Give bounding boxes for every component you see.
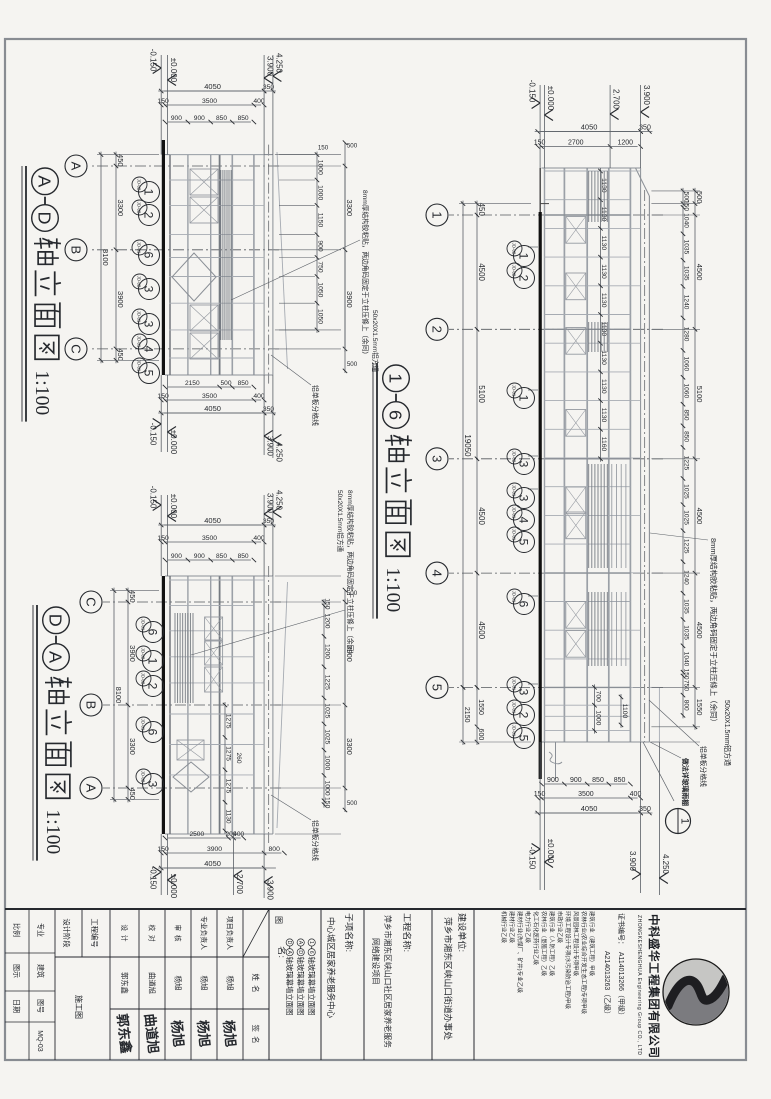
svg-text:1550: 1550 (695, 699, 704, 716)
svg-text:150: 150 (318, 145, 329, 152)
svg-text:450: 450 (128, 590, 137, 603)
svg-text:中心城区居家养老服务中心: 中心城区居家养老服务中心 (326, 917, 336, 1019)
svg-text:1: 1 (517, 253, 531, 260)
svg-text:D: D (35, 212, 55, 225)
svg-text:850: 850 (592, 777, 604, 784)
svg-text:-0.150: -0.150 (528, 847, 537, 870)
svg-text:3: 3 (517, 461, 531, 468)
svg-text:1240: 1240 (683, 570, 690, 585)
svg-text:1:100: 1:100 (31, 370, 53, 415)
svg-text:图: 图 (274, 916, 283, 924)
svg-text:450: 450 (477, 203, 486, 217)
svg-text:1: 1 (308, 941, 314, 944)
svg-text:3500: 3500 (202, 393, 217, 400)
svg-text:A: A (286, 950, 292, 954)
svg-text:3: 3 (146, 781, 160, 788)
svg-text:3900: 3900 (207, 846, 222, 853)
svg-text:800: 800 (683, 700, 690, 711)
svg-text:JD-01: JD-01 (137, 311, 142, 323)
svg-text:5: 5 (142, 370, 156, 377)
svg-text:3.900: 3.900 (628, 851, 637, 872)
svg-text:A: A (68, 162, 83, 171)
svg-text:JD-01: JD-01 (512, 702, 517, 714)
svg-text:网络建设项目: 网络建设项目 (371, 938, 381, 985)
svg-text:1: 1 (386, 373, 406, 383)
svg-text:4: 4 (142, 346, 156, 353)
svg-text:JD-02: JD-02 (141, 648, 146, 660)
svg-text:450: 450 (116, 348, 125, 361)
svg-text:1160: 1160 (600, 437, 607, 452)
svg-text:±0.000: ±0.000 (169, 494, 178, 519)
svg-text:1:100: 1:100 (382, 567, 404, 612)
svg-text:A: A (297, 941, 303, 945)
svg-text:JD-02: JD-02 (141, 771, 146, 783)
svg-text:JD-02: JD-02 (141, 673, 146, 685)
svg-text:1200: 1200 (324, 644, 331, 659)
svg-text:JD-02: JD-02 (137, 276, 142, 288)
svg-text:850: 850 (683, 409, 690, 420)
svg-text:900: 900 (317, 240, 324, 252)
svg-text:450: 450 (128, 787, 137, 800)
svg-text:3: 3 (429, 455, 444, 462)
svg-text:1025: 1025 (324, 703, 331, 718)
svg-text:1130: 1130 (600, 379, 607, 394)
svg-text:400: 400 (630, 791, 642, 798)
svg-text:1550: 1550 (477, 699, 484, 715)
svg-text:3: 3 (517, 689, 531, 696)
svg-text:6: 6 (146, 729, 160, 736)
svg-text:3300: 3300 (345, 200, 354, 217)
svg-text:4.250: 4.250 (274, 442, 283, 463)
svg-text:1: 1 (679, 818, 691, 824)
svg-text:JD-01: JD-01 (137, 336, 142, 348)
svg-text:JD-01: JD-01 (512, 507, 517, 519)
svg-text:JD-01: JD-01 (141, 719, 146, 731)
svg-text:JD-01: JD-01 (512, 679, 517, 691)
svg-text:JD-01: JD-01 (512, 529, 517, 541)
svg-text:2: 2 (517, 275, 531, 282)
svg-text:1225: 1225 (683, 456, 690, 471)
svg-text:D: D (46, 614, 66, 627)
svg-text:2700: 2700 (568, 140, 584, 147)
svg-text:B: B (83, 701, 98, 710)
svg-text:签 名: 签 名 (251, 1025, 261, 1044)
svg-text:500: 500 (220, 380, 231, 387)
svg-text:1240: 1240 (683, 295, 690, 310)
svg-text:850: 850 (216, 553, 227, 560)
svg-text:JD-02: JD-02 (512, 243, 517, 255)
svg-text:4050: 4050 (204, 82, 221, 91)
svg-text:1225: 1225 (324, 675, 331, 690)
svg-text:450: 450 (116, 154, 125, 167)
svg-text:900: 900 (570, 777, 582, 784)
svg-text:1275: 1275 (225, 746, 232, 761)
svg-text:850: 850 (238, 553, 249, 560)
svg-text:500: 500 (347, 361, 358, 368)
svg-text:2: 2 (517, 712, 531, 719)
svg-text:杨旭: 杨旭 (169, 1019, 188, 1048)
svg-text:C: C (68, 344, 83, 353)
svg-text:1025: 1025 (683, 484, 690, 499)
svg-text:4500: 4500 (477, 621, 486, 639)
svg-text:1200: 1200 (618, 140, 634, 147)
svg-text:4: 4 (517, 517, 531, 524)
svg-text:1000: 1000 (317, 160, 324, 175)
svg-text:500: 500 (695, 191, 704, 204)
svg-text:150: 150 (324, 598, 331, 610)
svg-text:4500: 4500 (695, 264, 704, 281)
svg-text:1040: 1040 (683, 213, 690, 228)
svg-text:姓 名: 姓 名 (251, 974, 261, 993)
svg-text:1100: 1100 (621, 704, 628, 719)
svg-text:6: 6 (142, 252, 156, 259)
svg-text:8100: 8100 (101, 249, 110, 266)
svg-text:萍乡市湘东区峡山口社区居家养老服务: 萍乡市湘东区峡山口社区居家养老服务 (383, 915, 393, 1048)
svg-text:ZHONGKESHENGHUA Engineering Gr: ZHONGKESHENGHUA Engineering Group CO., L… (636, 915, 642, 1055)
svg-text:150: 150 (534, 140, 546, 147)
svg-text:6: 6 (386, 410, 406, 420)
svg-text:JD-01: JD-01 (512, 385, 517, 397)
svg-text:±0.000: ±0.000 (546, 839, 555, 864)
svg-text:900: 900 (194, 553, 205, 560)
svg-text:A: A (46, 651, 66, 663)
svg-text:1060: 1060 (683, 356, 690, 371)
svg-text:5: 5 (517, 539, 531, 546)
svg-text:JD-01: JD-01 (512, 591, 517, 603)
svg-text:4050: 4050 (581, 804, 598, 813)
svg-text:4500: 4500 (477, 263, 486, 281)
svg-text:杨旭: 杨旭 (199, 976, 209, 991)
svg-text:4.250: 4.250 (274, 490, 283, 511)
svg-text:杨旭: 杨旭 (195, 1019, 214, 1048)
svg-text:5: 5 (429, 684, 444, 691)
svg-text:-0.150: -0.150 (149, 486, 158, 509)
svg-text:1: 1 (429, 211, 444, 218)
svg-text:-0.150: -0.150 (149, 49, 158, 72)
svg-text:900: 900 (547, 777, 559, 784)
svg-text:施工图: 施工图 (74, 995, 84, 1019)
svg-text:750: 750 (683, 680, 690, 691)
svg-text:1150: 1150 (317, 213, 324, 228)
svg-text:5100: 5100 (695, 386, 704, 403)
svg-text:400: 400 (253, 393, 265, 400)
svg-text:400: 400 (253, 535, 265, 542)
svg-text:C: C (83, 597, 98, 606)
svg-text:图号: 图号 (36, 999, 45, 1013)
svg-text:1050: 1050 (317, 309, 324, 324)
svg-text:4500: 4500 (477, 507, 486, 525)
svg-text:轴玻璃幕墙立面图: 轴玻璃幕墙立面图 (296, 957, 305, 1016)
svg-text:中科盛华工程集团有限公司: 中科盛华工程集团有限公司 (647, 914, 661, 1058)
svg-text:150: 150 (683, 669, 690, 680)
svg-text:1000: 1000 (317, 185, 324, 200)
svg-text:400: 400 (233, 831, 244, 838)
svg-text:±0.000: ±0.000 (546, 86, 555, 111)
svg-text:4500: 4500 (695, 508, 704, 525)
svg-text:600: 600 (477, 729, 484, 741)
svg-text:850: 850 (683, 431, 690, 442)
svg-text:2: 2 (146, 683, 160, 690)
svg-text:500: 500 (347, 800, 358, 807)
svg-text:8mm厚结构胶粘贴，两边角码固定于立柱压條上（余同）: 8mm厚结构胶粘贴，两边角码固定于立柱压條上（余同） (709, 538, 719, 726)
svg-text:3500: 3500 (202, 535, 217, 542)
svg-text:4.250: 4.250 (661, 854, 670, 875)
svg-text:4500: 4500 (695, 622, 704, 639)
svg-text:3300: 3300 (345, 738, 354, 755)
svg-text:8100: 8100 (114, 687, 123, 704)
svg-text:1035: 1035 (683, 625, 690, 640)
svg-text:4: 4 (429, 569, 444, 576)
svg-text:设计阶段: 设计阶段 (62, 919, 71, 948)
svg-text:850: 850 (614, 777, 626, 784)
svg-text:3900: 3900 (116, 291, 125, 308)
svg-text:500: 500 (683, 192, 690, 203)
svg-text:900: 900 (171, 115, 182, 122)
svg-text:4050: 4050 (204, 859, 221, 868)
svg-text:3900: 3900 (345, 291, 354, 308)
svg-text:6: 6 (308, 951, 314, 954)
svg-text:5100: 5100 (477, 385, 486, 403)
svg-text:3.900: 3.900 (642, 85, 651, 106)
svg-text:4050: 4050 (581, 123, 598, 132)
svg-text:1130: 1130 (600, 408, 607, 423)
svg-text:900: 900 (171, 553, 182, 560)
svg-text:1225: 1225 (683, 539, 690, 554)
svg-text:1: 1 (142, 189, 156, 196)
svg-text:850: 850 (238, 115, 249, 122)
svg-text:2150: 2150 (463, 707, 470, 723)
svg-text:1130: 1130 (600, 264, 607, 279)
svg-text:子项名称:: 子项名称: (344, 913, 354, 952)
svg-text:建筑: 建筑 (36, 964, 45, 978)
svg-text:3: 3 (142, 321, 156, 328)
svg-text:A: A (83, 784, 98, 793)
svg-text:1040: 1040 (683, 652, 690, 667)
svg-text:1275: 1275 (225, 714, 232, 729)
svg-text:1025: 1025 (324, 729, 331, 744)
svg-text:JD-01: JD-01 (141, 619, 146, 631)
svg-text:1060: 1060 (683, 383, 690, 398)
svg-text:150: 150 (324, 797, 331, 809)
svg-text:-0.150: -0.150 (528, 80, 537, 103)
svg-text:JD-02: JD-02 (137, 202, 142, 214)
svg-text:750: 750 (317, 261, 324, 273)
svg-text:1130: 1130 (600, 235, 607, 250)
svg-text:800: 800 (269, 846, 281, 853)
svg-text:19050: 19050 (463, 434, 472, 457)
svg-text:1130: 1130 (600, 293, 607, 308)
svg-text:2500: 2500 (189, 831, 204, 838)
svg-text:5: 5 (517, 735, 531, 742)
svg-text:3300: 3300 (128, 738, 137, 755)
svg-text:1000: 1000 (594, 710, 601, 725)
svg-text:工程名称:: 工程名称: (402, 913, 412, 952)
svg-text:-0.150: -0.150 (149, 867, 158, 890)
svg-text:3.900: 3.900 (266, 880, 275, 901)
svg-text:±0.000: ±0.000 (169, 430, 178, 455)
svg-text:1:100: 1:100 (42, 809, 64, 854)
svg-text:1000: 1000 (324, 755, 331, 770)
svg-text:500: 500 (347, 143, 358, 150)
svg-text:1050: 1050 (317, 282, 324, 297)
svg-text:JD-02: JD-02 (512, 451, 517, 463)
svg-text:建设单位:: 建设单位: (457, 913, 467, 952)
svg-text:日期: 日期 (12, 999, 21, 1013)
svg-text:图示: 图示 (12, 964, 21, 978)
svg-text:1130: 1130 (600, 350, 607, 365)
svg-text:D: D (286, 941, 292, 945)
svg-text:1130: 1130 (225, 809, 232, 824)
svg-text:4.250: 4.250 (274, 53, 283, 74)
svg-text:JD-01: JD-01 (137, 360, 142, 372)
svg-text:3500: 3500 (202, 98, 217, 105)
svg-text:400: 400 (253, 98, 265, 105)
svg-text:D: D (297, 950, 303, 954)
svg-text:郭东鑫: 郭东鑫 (120, 972, 130, 994)
svg-text:1: 1 (146, 658, 160, 665)
svg-text:850: 850 (238, 380, 249, 387)
svg-text:3900: 3900 (128, 645, 137, 662)
svg-text:A: A (35, 175, 55, 187)
svg-text:JD-01: JD-01 (512, 485, 517, 497)
svg-text:2: 2 (429, 326, 444, 333)
svg-text:MQ-03: MQ-03 (36, 1030, 43, 1052)
svg-text:50x20X1.5mm铝方通: 50x20X1.5mm铝方通 (723, 700, 732, 766)
svg-text:4050: 4050 (204, 516, 221, 525)
svg-text:2.700: 2.700 (612, 89, 621, 110)
svg-text:260: 260 (235, 752, 242, 763)
svg-text:专业: 专业 (36, 923, 45, 937)
svg-text:轴玻璃幕墙立面图: 轴玻璃幕墙立面图 (285, 957, 294, 1016)
svg-text:3: 3 (517, 495, 531, 502)
svg-text:-0.150: -0.150 (149, 423, 158, 446)
svg-text:4050: 4050 (204, 404, 221, 413)
svg-text:比例: 比例 (12, 923, 21, 937)
svg-text:杨旭: 杨旭 (173, 976, 183, 991)
svg-text:杨旭: 杨旭 (221, 1019, 240, 1048)
svg-text:±0.000: ±0.000 (169, 58, 178, 83)
svg-text:JD-01: JD-01 (512, 725, 517, 737)
svg-text:2: 2 (142, 212, 156, 219)
svg-text:150: 150 (534, 791, 546, 798)
svg-text:JD-01: JD-01 (137, 242, 142, 254)
svg-text:1035: 1035 (683, 599, 690, 614)
svg-text:轴玻璃幕墙立面图: 轴玻璃幕墙立面图 (307, 957, 316, 1016)
svg-text:6: 6 (517, 601, 531, 608)
svg-text:3: 3 (142, 286, 156, 293)
svg-text:6: 6 (146, 629, 160, 636)
svg-text:JD-02: JD-02 (512, 265, 517, 277)
svg-text:B: B (68, 245, 83, 254)
svg-text:1: 1 (517, 395, 531, 402)
svg-text:1025: 1025 (683, 510, 690, 525)
svg-text:工程编号: 工程编号 (90, 919, 99, 948)
svg-text:1035: 1035 (683, 266, 690, 281)
svg-text:2150: 2150 (185, 380, 200, 387)
svg-text:3300: 3300 (116, 200, 125, 217)
svg-text:JD-02: JD-02 (137, 179, 142, 191)
svg-text:萍乡市湘东区峡山口街道办事处: 萍乡市湘东区峡山口街道办事处 (443, 917, 454, 1040)
svg-text:杨旭: 杨旭 (225, 976, 235, 991)
svg-text:850: 850 (216, 115, 227, 122)
svg-text:900: 900 (194, 115, 205, 122)
svg-text:700: 700 (594, 691, 601, 703)
svg-text:曲道旭: 曲道旭 (147, 972, 157, 994)
svg-text:3500: 3500 (578, 791, 594, 798)
svg-text:±0.000: ±0.000 (169, 874, 178, 899)
svg-text:1035: 1035 (683, 240, 690, 255)
svg-text:1275: 1275 (225, 779, 232, 794)
svg-text:2.700: 2.700 (235, 874, 244, 895)
